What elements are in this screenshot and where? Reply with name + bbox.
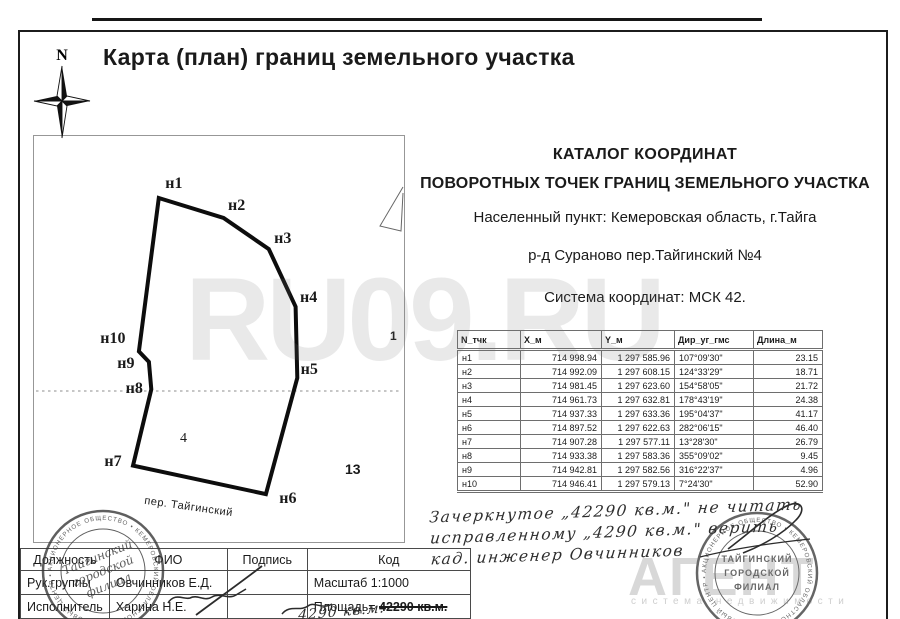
compass-north-label: N <box>56 47 68 64</box>
boundary-point-label-н8: н8 <box>126 380 143 398</box>
catalog-cell: 714 992.09 <box>521 365 602 379</box>
catalog-cell: н5 <box>458 407 521 421</box>
row1-signature-cell <box>227 571 307 595</box>
catalog-col-header: Дир_уг_гмс <box>675 331 754 350</box>
catalog-cell: 107°09'30" <box>675 350 754 365</box>
page-title: Карта (план) границ земельного участка <box>103 44 575 71</box>
catalog-cell: 714 907.28 <box>521 435 602 449</box>
col-signature-header: Подпись <box>227 549 307 571</box>
catalog-cell: 714 961.73 <box>521 393 602 407</box>
settlement-line: Населенный пункт: Кемеровская область, г… <box>398 209 892 226</box>
catalog-cell: 41.17 <box>754 407 823 421</box>
catalog-cell: н4 <box>458 393 521 407</box>
round-stamp-left: АКЦИОНЕРНОЕ ОБЩЕСТВО • КЕМЕРОВСКИЙ ОБЛАС… <box>38 506 168 619</box>
catalog-cell: 1 297 623.60 <box>602 379 675 393</box>
boundary-point-label-н7: н7 <box>104 453 121 471</box>
compass-star <box>34 66 90 138</box>
stamp-right-center-line2: ГОРОДСКОЙ <box>724 567 790 578</box>
coordinate-catalog: КАТАЛОГ КООРДИНАТ ПОВОРОТНЫХ ТОЧЕК ГРАНИ… <box>398 138 892 306</box>
boundary-point-label-н5: н5 <box>301 361 318 379</box>
map-frame <box>33 135 405 543</box>
address-line: р-д Сураново пер.Тайгинский №4 <box>398 247 892 264</box>
catalog-cell: 23.15 <box>754 350 823 365</box>
scale-cell: Масштаб 1:1000 <box>307 571 470 595</box>
catalog-cell: н7 <box>458 435 521 449</box>
catalog-cell: 714 933.38 <box>521 449 602 463</box>
boundary-point-label-н4: н4 <box>300 289 317 307</box>
boundary-point-label-н9: н9 <box>117 355 134 373</box>
catalog-cell: 1 297 633.36 <box>602 407 675 421</box>
catalog-row: н1714 998.941 297 585.96107°09'30"23.15 <box>458 350 823 365</box>
catalog-cell: 1 297 583.36 <box>602 449 675 463</box>
catalog-cell: 1 297 632.81 <box>602 393 675 407</box>
catalog-row: н3714 981.451 297 623.60154°58'05"21.72 <box>458 379 823 393</box>
catalog-row: н10714 946.411 297 579.137°24'30"52.90 <box>458 477 823 492</box>
catalog-cell: 52.90 <box>754 477 823 492</box>
coordinates-table: N_тчкX_мY_мДир_уг_гмсДлина_м н1714 998.9… <box>457 330 823 493</box>
catalog-row: н9714 942.811 297 582.56316°22'37"4.96 <box>458 463 823 477</box>
catalog-cell: 714 897.52 <box>521 421 602 435</box>
catalog-col-header: X_м <box>521 331 602 350</box>
catalog-cell: 1 297 579.13 <box>602 477 675 492</box>
catalog-cell: 1 297 577.11 <box>602 435 675 449</box>
catalog-cell: н6 <box>458 421 521 435</box>
catalog-cell: 316°22'37" <box>675 463 754 477</box>
catalog-cell: 714 942.81 <box>521 463 602 477</box>
catalog-col-header: Длина_м <box>754 331 823 350</box>
catalog-cell: 714 946.41 <box>521 477 602 492</box>
catalog-cell: 13°28'30" <box>675 435 754 449</box>
catalog-heading-line2: ПОВОРОТНЫХ ТОЧЕК ГРАНИЦ ЗЕМЕЛЬНОГО УЧАСТ… <box>398 175 892 193</box>
catalog-table-head-row: N_тчкX_мY_мДир_уг_гмсДлина_м <box>458 331 823 350</box>
catalog-col-header: N_тчк <box>458 331 521 350</box>
catalog-cell: 1 297 585.96 <box>602 350 675 365</box>
catalog-cell: 714 998.94 <box>521 350 602 365</box>
catalog-row: н7714 907.281 297 577.1113°28'30"26.79 <box>458 435 823 449</box>
area-value-struck: 42290 кв.м. <box>379 600 447 614</box>
catalog-cell: 4.96 <box>754 463 823 477</box>
catalog-cell: 1 297 622.63 <box>602 421 675 435</box>
compass-rose: N <box>32 44 96 144</box>
catalog-cell: 1 297 582.56 <box>602 463 675 477</box>
catalog-cell: 7°24'30" <box>675 477 754 492</box>
catalog-cell: н2 <box>458 365 521 379</box>
catalog-cell: 124°33'29" <box>675 365 754 379</box>
catalog-row: н6714 897.521 297 622.63282°06'15"46.40 <box>458 421 823 435</box>
catalog-row: н4714 961.731 297 632.81178°43'19"24.38 <box>458 393 823 407</box>
catalog-table-body: н1714 998.941 297 585.96107°09'30"23.15н… <box>458 350 823 492</box>
catalog-col-header: Y_м <box>602 331 675 350</box>
catalog-cell: 24.38 <box>754 393 823 407</box>
catalog-cell: 355°09'02" <box>675 449 754 463</box>
stamp-right-center-line3: ФИЛИАЛ <box>734 582 780 592</box>
row2-signature-cell <box>227 595 307 619</box>
catalog-cell: 178°43'19" <box>675 393 754 407</box>
scan-edge-line <box>92 18 762 21</box>
catalog-cell: 46.40 <box>754 421 823 435</box>
catalog-row: н2714 992.091 297 608.15124°33'29"18.71 <box>458 365 823 379</box>
boundary-point-label-н6: н6 <box>279 490 296 508</box>
catalog-cell: 26.79 <box>754 435 823 449</box>
boundary-point-label-н3: н3 <box>274 230 291 248</box>
catalog-heading-line1: КАТАЛОГ КООРДИНАТ <box>398 146 892 164</box>
catalog-cell: 9.45 <box>754 449 823 463</box>
catalog-cell: 18.71 <box>754 365 823 379</box>
catalog-cell: н10 <box>458 477 521 492</box>
catalog-cell: 1 297 608.15 <box>602 365 675 379</box>
catalog-row: н8714 933.381 297 583.36355°09'02"9.45 <box>458 449 823 463</box>
coordinate-system-line: Система координат: МСК 42. <box>398 289 892 306</box>
catalog-cell: н1 <box>458 350 521 365</box>
catalog-row: н5714 937.331 297 633.36195°04'37"41.17 <box>458 407 823 421</box>
catalog-cell: 195°04'37" <box>675 407 754 421</box>
catalog-cell: н3 <box>458 379 521 393</box>
neighbor-parcel-label-right: 1 <box>390 329 397 343</box>
catalog-cell: 282°06'15" <box>675 421 754 435</box>
neighbor-parcel-label-bottom: 13 <box>345 461 361 477</box>
catalog-cell: н9 <box>458 463 521 477</box>
boundary-point-label-н1: н1 <box>165 175 182 193</box>
catalog-cell: 714 937.33 <box>521 407 602 421</box>
catalog-cell: 714 981.45 <box>521 379 602 393</box>
parcel-number-label: 4 <box>180 431 187 447</box>
document-page: N Карта (план) границ земельного участка… <box>0 0 900 619</box>
boundary-point-label-н2: н2 <box>228 197 245 215</box>
catalog-cell: н8 <box>458 449 521 463</box>
catalog-cell: 154°58'05" <box>675 379 754 393</box>
catalog-cell: 21.72 <box>754 379 823 393</box>
boundary-point-label-н10: н10 <box>100 330 125 348</box>
